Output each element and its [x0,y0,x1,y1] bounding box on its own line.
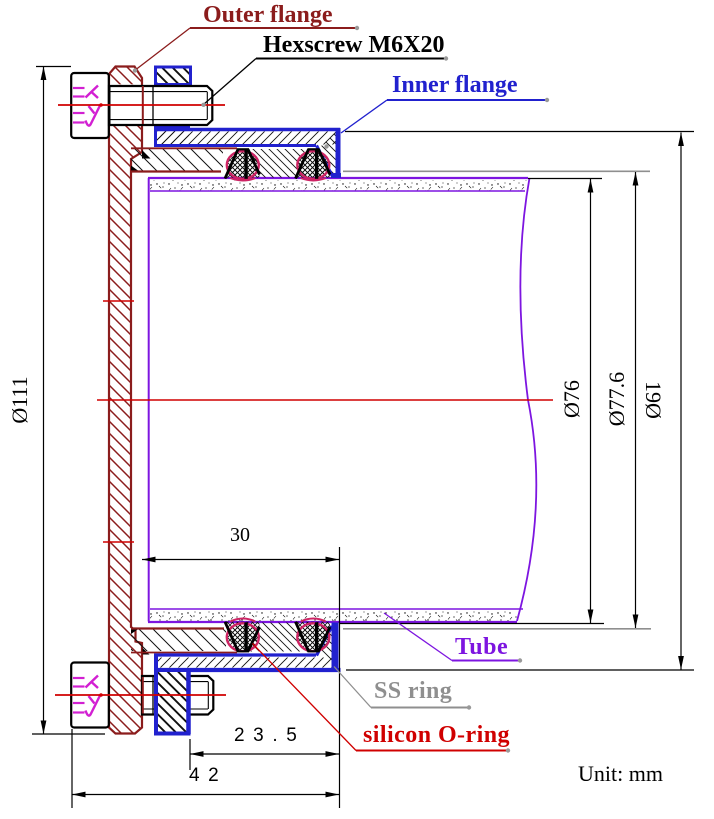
svg-text:Ø111: Ø111 [7,376,32,423]
svg-text:23.5: 23.5 [234,725,305,746]
svg-text:Inner flange: Inner flange [392,72,518,98]
svg-text:Ø76: Ø76 [559,380,584,418]
svg-text:Hexscrew M6X20: Hexscrew M6X20 [263,32,445,58]
svg-text:Unit: mm: Unit: mm [578,761,663,786]
svg-text:Ø77.6: Ø77.6 [604,372,629,426]
svg-text:19Ø: 19Ø [641,381,666,419]
svg-text:Outer flange: Outer flange [203,2,333,28]
svg-text:42: 42 [189,765,227,786]
svg-text:SS ring: SS ring [374,678,452,704]
svg-text:Tube: Tube [455,634,508,660]
svg-text:30: 30 [230,524,250,546]
svg-text:silicon O-ring: silicon O-ring [363,722,510,748]
